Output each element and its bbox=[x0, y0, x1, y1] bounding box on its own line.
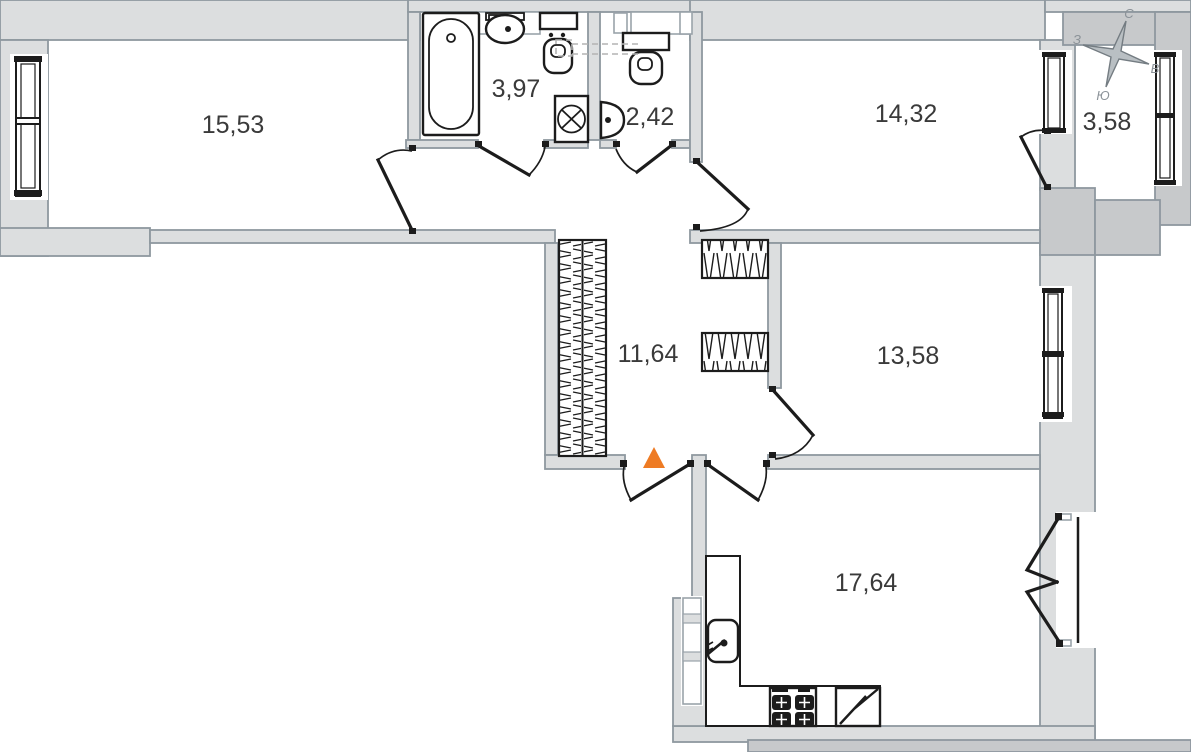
refrigerator-symbol bbox=[836, 688, 880, 726]
area-room-top-left: 15,53 bbox=[202, 111, 265, 139]
wardrobe-upper-symbol bbox=[702, 240, 768, 278]
area-balcony: 3,58 bbox=[1083, 108, 1132, 136]
wardrobe-lower-symbol bbox=[702, 333, 768, 371]
kitchen-sink-symbol bbox=[706, 620, 738, 662]
window-kitchen-left bbox=[681, 596, 703, 706]
area-kitchen: 17,64 bbox=[835, 569, 898, 597]
door-room-top-right bbox=[693, 158, 748, 231]
french-window-kitchen bbox=[1027, 512, 1096, 648]
entrance-marker bbox=[643, 447, 665, 468]
area-hallway: 11,64 bbox=[618, 340, 679, 368]
bathtub-symbol bbox=[423, 13, 479, 135]
door-kitchen bbox=[704, 460, 770, 500]
compass-south-label: Ю bbox=[1096, 88, 1109, 103]
gas-stove-symbol bbox=[770, 688, 816, 727]
area-wc: 2,42 bbox=[626, 103, 675, 131]
area-room-middle-right: 13,58 bbox=[877, 342, 940, 370]
hand-sink-symbol bbox=[601, 102, 624, 138]
wardrobe-tall-symbol bbox=[559, 240, 606, 456]
floor-plan-canvas: С Ю З В 15,53 3,97 2,42 14,32 3,58 11,64… bbox=[0, 0, 1191, 752]
toilet-wc-symbol bbox=[623, 33, 669, 84]
compass-north-label: С bbox=[1124, 6, 1134, 21]
room-area-labels: 15,53 3,97 2,42 14,32 3,58 11,64 13,58 1… bbox=[202, 75, 1132, 597]
window-room-top-left bbox=[10, 54, 48, 200]
door-bathroom bbox=[475, 141, 549, 175]
compass-east-label: В bbox=[1151, 61, 1160, 76]
door-wc bbox=[613, 141, 676, 172]
area-bathroom: 3,97 bbox=[492, 75, 541, 103]
floor-plan: С Ю З В 15,53 3,97 2,42 14,32 3,58 11,64… bbox=[0, 0, 1191, 752]
window-room-middle-right bbox=[1038, 286, 1072, 422]
toilet-bathroom-symbol bbox=[540, 13, 577, 73]
door-room-top-left bbox=[378, 145, 416, 234]
washing-machine-symbol bbox=[555, 96, 588, 142]
compass-west-label: З bbox=[1073, 32, 1081, 47]
door-room-middle-right bbox=[769, 386, 813, 459]
area-room-top-right: 14,32 bbox=[875, 100, 938, 128]
window-balcony-left bbox=[1038, 50, 1072, 134]
